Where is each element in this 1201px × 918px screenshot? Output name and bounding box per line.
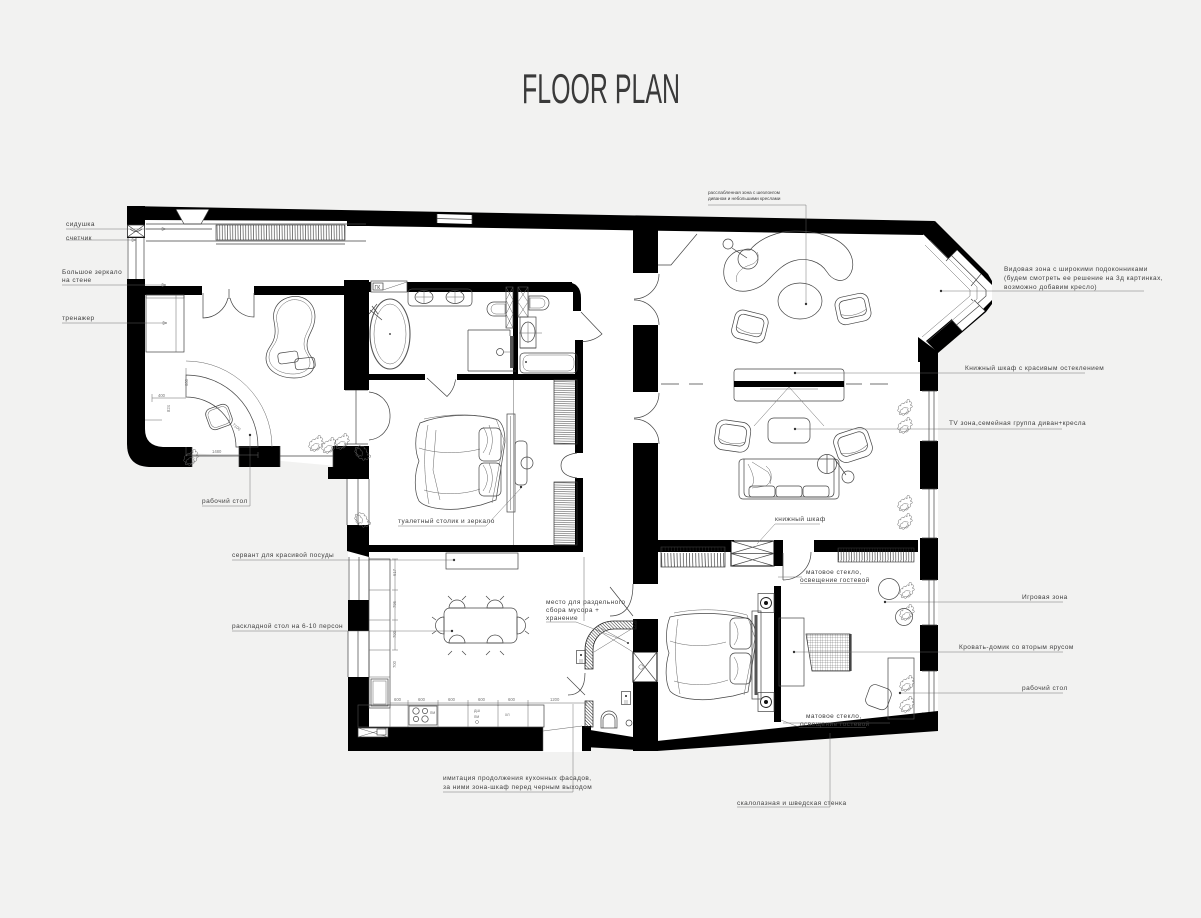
svg-text:ГК: ГК xyxy=(375,285,381,291)
svg-text:TV зона,семейная группа диван+: TV зона,семейная группа диван+кресла xyxy=(949,419,1086,427)
svg-text:освещение гостевой: освещение гостевой xyxy=(800,720,870,728)
svg-text:тренажер: тренажер xyxy=(62,315,95,322)
svg-text:матовое стекло,: матовое стекло, xyxy=(806,569,862,576)
svg-text:хл: хл xyxy=(505,712,510,717)
svg-text:хранение: хранение xyxy=(546,615,578,622)
svg-text:сервант для красивой посуды: сервант для красивой посуды xyxy=(232,551,334,559)
svg-text:рабочий стол: рабочий стол xyxy=(202,497,248,505)
svg-text:617: 617 xyxy=(392,568,397,576)
svg-text:Книжный шкаф с красивым остекл: Книжный шкаф с красивым остеклением xyxy=(965,364,1104,372)
svg-text:1480: 1480 xyxy=(212,449,222,454)
svg-text:824: 824 xyxy=(166,404,171,412)
svg-text:книжный шкаф: книжный шкаф xyxy=(775,515,826,523)
svg-text:700: 700 xyxy=(392,630,397,638)
svg-text:796: 796 xyxy=(392,600,397,608)
svg-text:600: 600 xyxy=(184,378,189,386)
svg-text:Кровать-домик со вторым ярусом: Кровать-домик со вторым ярусом xyxy=(959,644,1074,651)
svg-text:сбора мусора +: сбора мусора + xyxy=(546,606,599,614)
svg-text:освещение гостевой: освещение гостевой xyxy=(800,576,870,584)
svg-text:1200: 1200 xyxy=(550,697,560,702)
svg-text:600: 600 xyxy=(394,697,402,702)
svg-text:пм: пм xyxy=(430,710,435,715)
svg-text:600: 600 xyxy=(508,697,516,702)
svg-text:600: 600 xyxy=(478,697,486,702)
svg-text:FLOOR PLAN: FLOOR PLAN xyxy=(522,65,680,112)
svg-text:сидушка: сидушка xyxy=(66,221,95,228)
svg-text:рабочий стол: рабочий стол xyxy=(1022,684,1068,692)
svg-text:возможно добавим кресло): возможно добавим кресло) xyxy=(1004,283,1097,291)
svg-text:600: 600 xyxy=(448,697,456,702)
svg-text:место для раздельного: место для раздельного xyxy=(546,599,625,606)
svg-text:за ними зона-шкаф перед черным: за ними зона-шкаф перед черным выходом xyxy=(443,784,592,791)
svg-text:пм: пм xyxy=(474,714,479,719)
svg-text:дш: дш xyxy=(474,708,480,713)
svg-text:400: 400 xyxy=(158,393,166,398)
svg-text:Видовая зона с широкими подоко: Видовая зона с широкими подоконниками xyxy=(1004,266,1148,273)
svg-text:счетчик: счетчик xyxy=(66,235,92,242)
svg-text:матовое стекло,: матовое стекло, xyxy=(806,713,862,720)
svg-text:раскладной стол на 6-10 персон: раскладной стол на 6-10 персон xyxy=(232,622,343,630)
svg-text:600: 600 xyxy=(418,697,426,702)
svg-text:расслабленная зона с шезлонгом: расслабленная зона с шезлонгом xyxy=(708,190,780,195)
svg-text:(будем смотреть ее решение на: (будем смотреть ее решение на 3д картинк… xyxy=(1004,274,1163,282)
svg-text:туалетный столик и зеркало: туалетный столик и зеркало xyxy=(398,517,495,525)
svg-text:имитация продолжения кухонных: имитация продолжения кухонных фасадов, xyxy=(443,775,592,782)
svg-text:на стене: на стене xyxy=(62,277,92,284)
svg-text:700: 700 xyxy=(392,660,397,668)
svg-text:Большое зеркало: Большое зеркало xyxy=(62,269,122,276)
svg-text:Игровая зона: Игровая зона xyxy=(1022,594,1068,601)
svg-text:диваном и небольшими креслами: диваном и небольшими креслами xyxy=(708,196,781,201)
